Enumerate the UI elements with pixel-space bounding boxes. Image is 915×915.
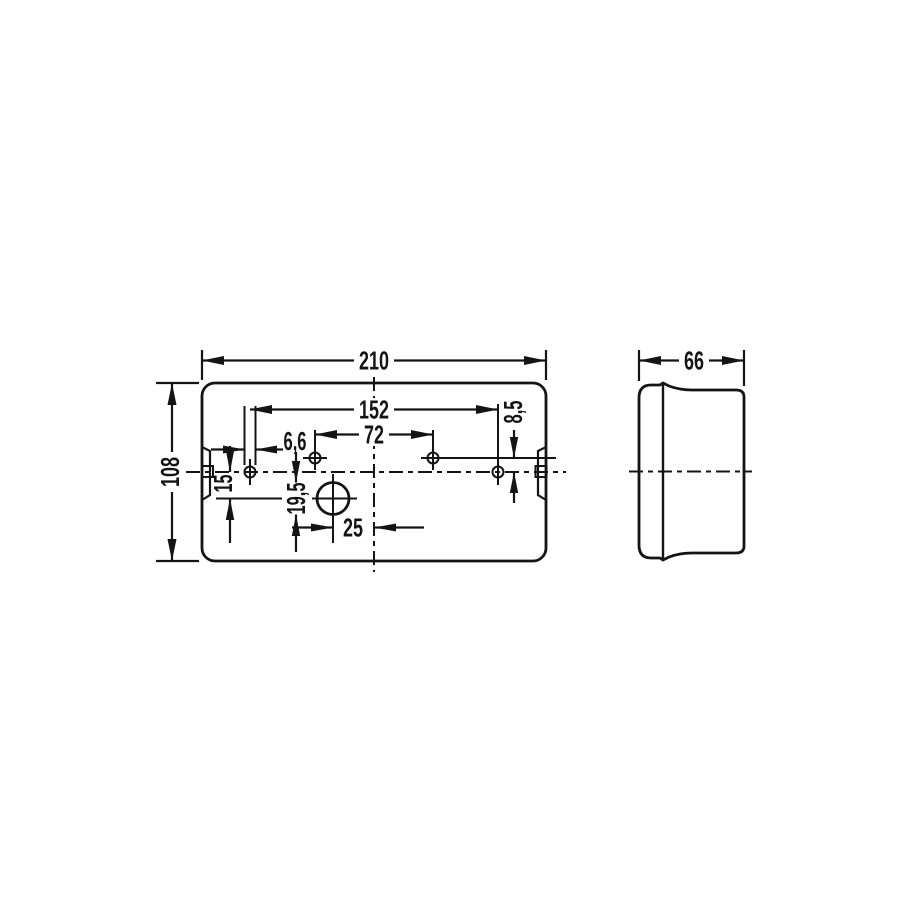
dim-210-arrow-right xyxy=(524,356,546,365)
label-hole-dia-6-6: 6,6 xyxy=(284,426,307,456)
label-offset-25: 25 xyxy=(343,513,363,543)
label-width-210: 210 xyxy=(359,346,389,376)
dim-66-arrow-left xyxy=(639,356,661,365)
dim-66-arrow-right xyxy=(722,356,744,365)
dim-15-arrow-up xyxy=(226,499,234,521)
dim-85-arrow-up xyxy=(510,472,518,493)
dimension-labels: 210 152 72 6,6 25 66 108 15 19,5 8,5 xyxy=(155,346,704,543)
dim-72-arrow-left xyxy=(315,430,337,439)
dim-66dia-arrow-right xyxy=(256,446,278,454)
label-offset-15: 15 xyxy=(208,475,238,493)
dim-108-arrow-bottom xyxy=(168,539,177,561)
dim-152-arrow-right xyxy=(476,405,498,414)
side-view xyxy=(629,383,752,560)
lamp-dimension-drawing: 210 152 72 6,6 25 66 108 15 19,5 8,5 xyxy=(0,0,915,915)
dim-15-arrow-down xyxy=(226,450,234,472)
technical-drawing-canvas: 210 152 72 6,6 25 66 108 15 19,5 8,5 xyxy=(0,0,915,915)
dim-152-arrow-left xyxy=(250,405,272,414)
dim-85-arrow-down xyxy=(510,437,518,458)
dim-offset-15 xyxy=(226,446,234,543)
hole-upper-right-crosshair xyxy=(421,430,556,470)
dim-72-arrow-right xyxy=(411,430,433,439)
hole-left-tangent-lines xyxy=(245,406,256,465)
dim-25-arrow-left xyxy=(374,524,396,532)
label-height-108: 108 xyxy=(155,457,185,487)
dim-108-arrow-top xyxy=(168,383,177,405)
label-depth-66: 66 xyxy=(684,346,704,376)
label-circle-dia-19-5: 19,5 xyxy=(281,483,311,515)
label-span-72: 72 xyxy=(364,420,384,450)
label-offset-8-5: 8,5 xyxy=(498,401,528,424)
label-halos xyxy=(159,349,709,492)
dim-195-arrow-up xyxy=(292,515,300,537)
dim-offset-8-5 xyxy=(510,430,518,503)
dim-25-arrow-right xyxy=(311,524,333,532)
dim-hole-dia-6-6 xyxy=(211,446,283,454)
dim-210-arrow-left xyxy=(202,356,224,365)
